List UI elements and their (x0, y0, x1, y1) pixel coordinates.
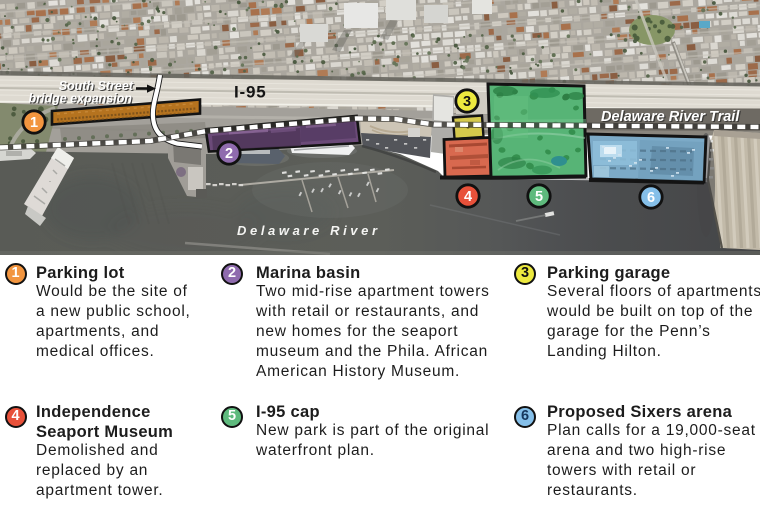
svg-text:Delaware River: Delaware River (237, 223, 381, 238)
svg-text:2: 2 (225, 146, 233, 162)
svg-text:6: 6 (647, 190, 655, 206)
svg-text:5: 5 (535, 189, 543, 205)
svg-text:1: 1 (30, 115, 38, 131)
svg-text:4: 4 (464, 189, 472, 205)
svg-text:I-95: I-95 (234, 83, 267, 102)
svg-text:Delaware River Trail: Delaware River Trail (601, 109, 740, 125)
svg-text:3: 3 (463, 94, 471, 110)
svg-text:bridge expansion: bridge expansion (29, 91, 133, 105)
